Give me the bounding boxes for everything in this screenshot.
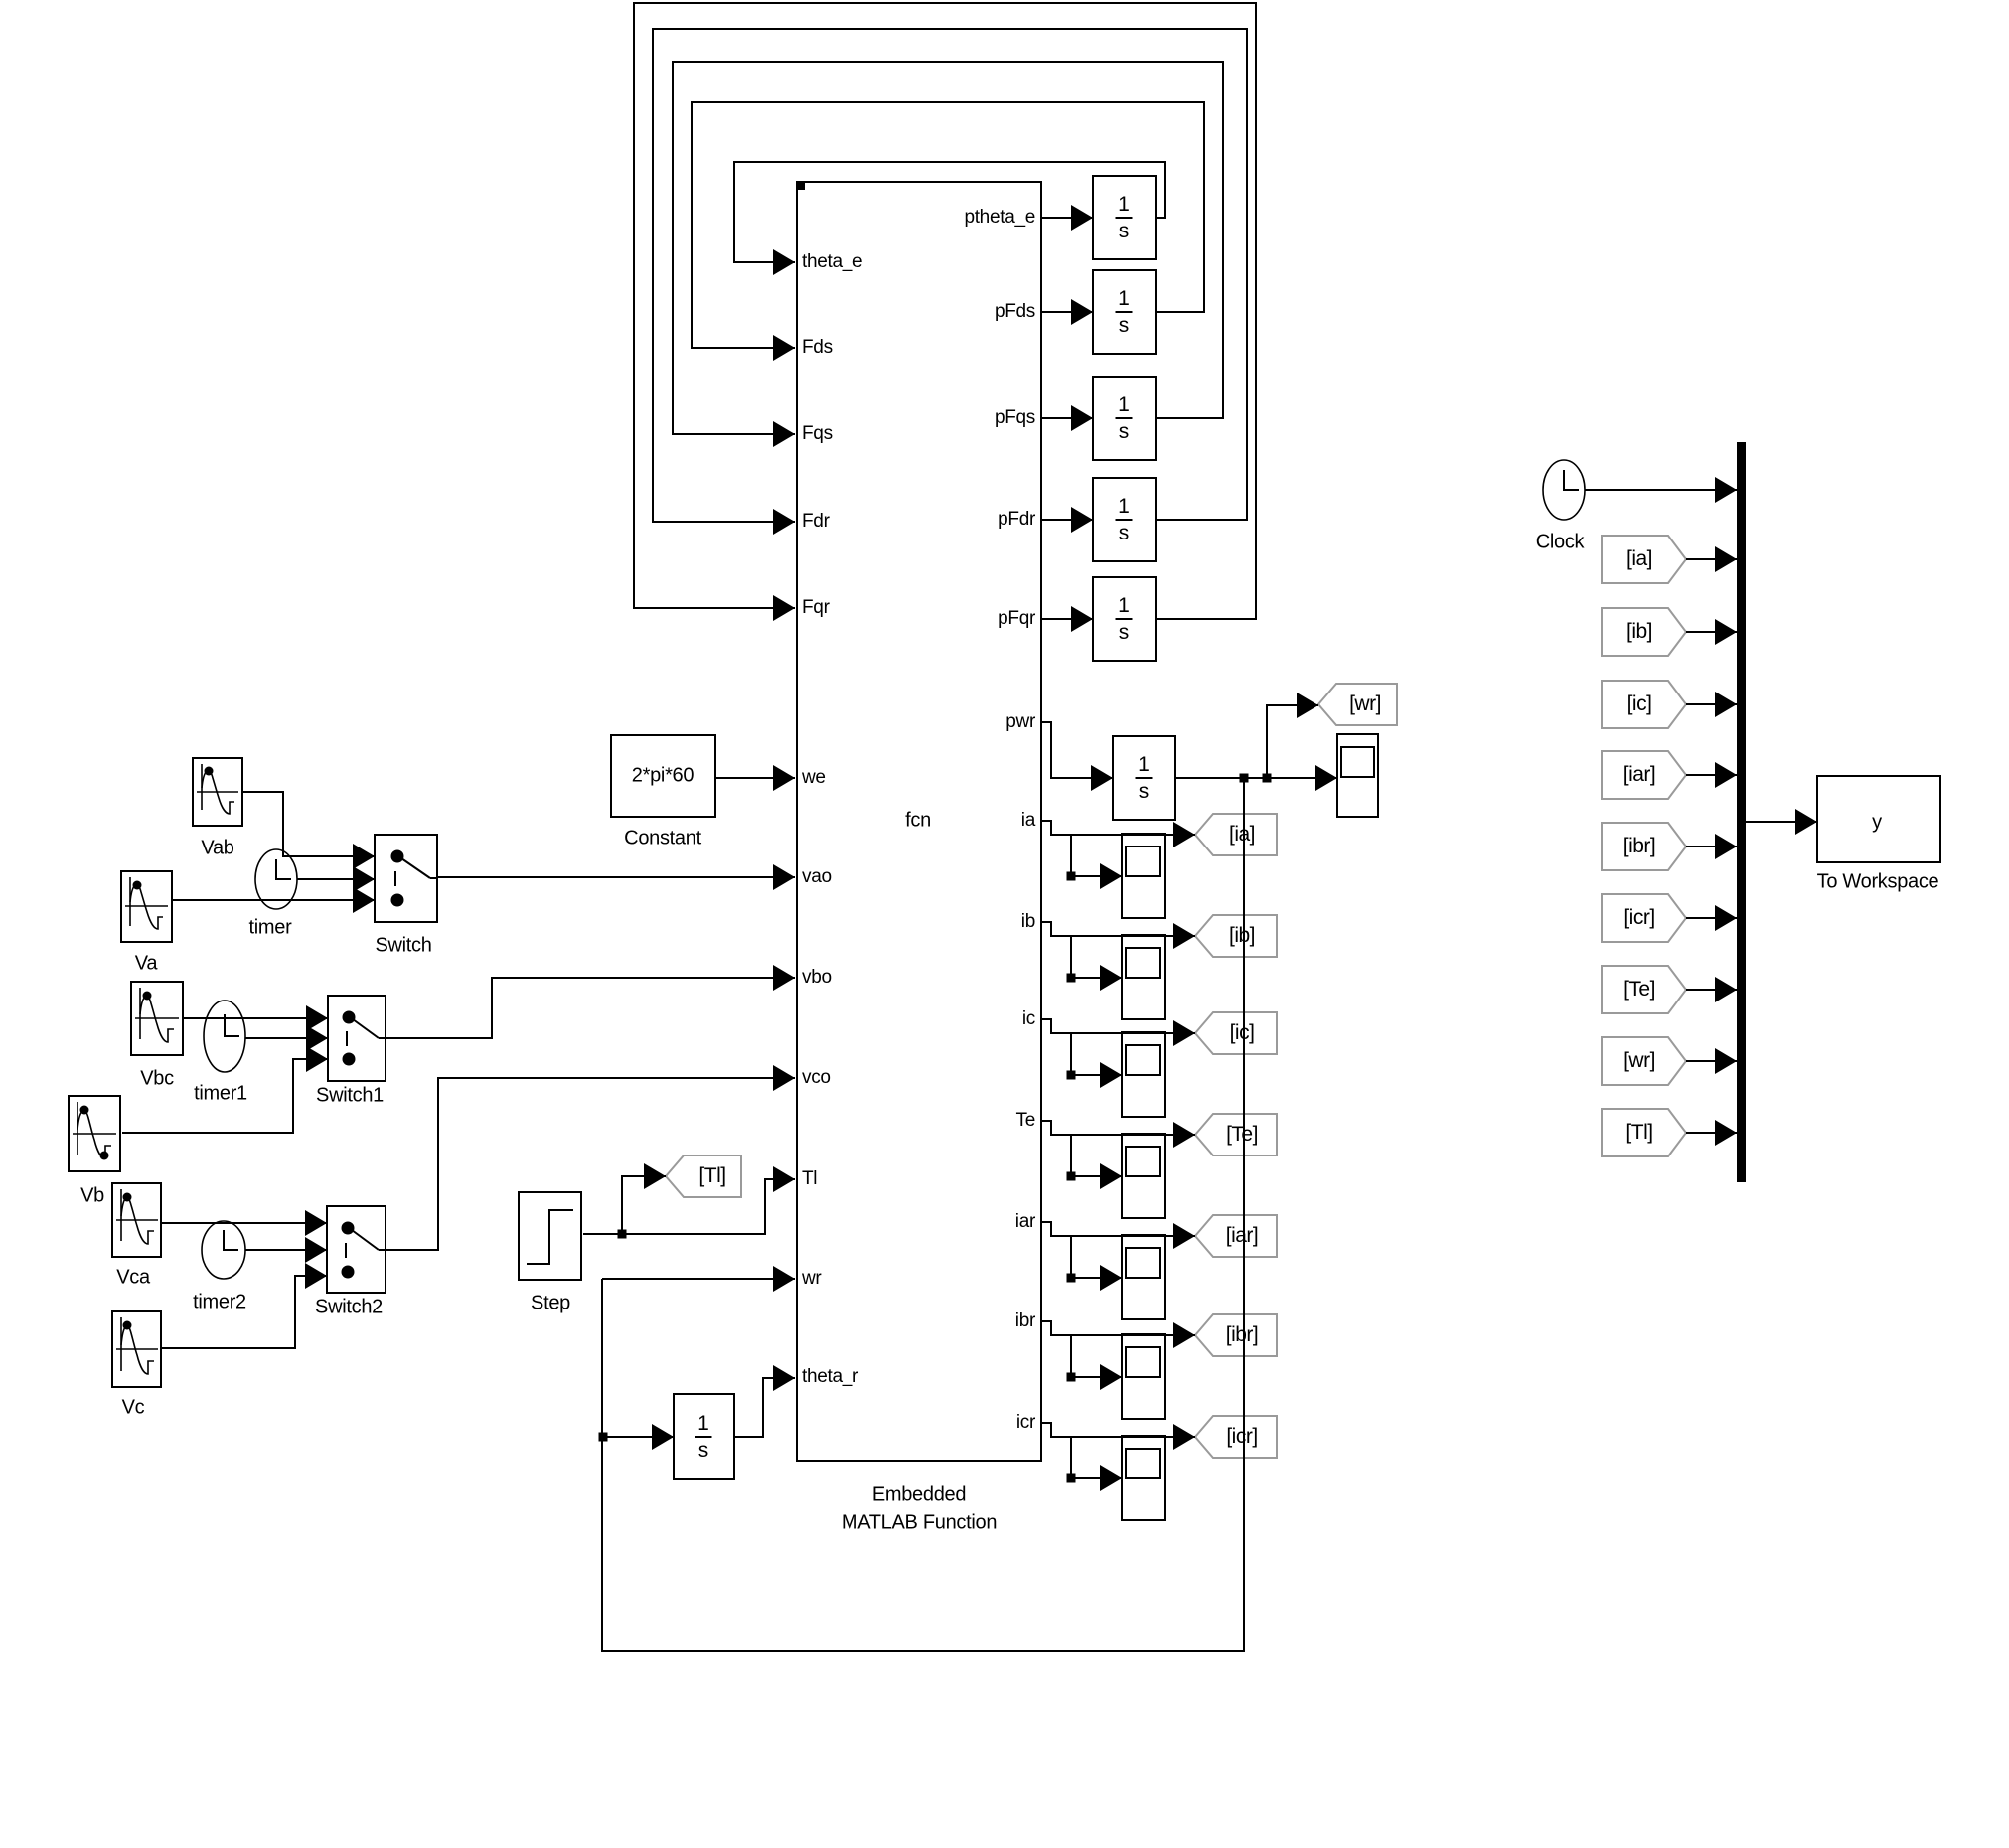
- simulink-model-canvas: Vab timer Switch Va Vbc timer1 Switch1 V…: [0, 0, 2009, 1848]
- port-out-iar: iar: [1015, 1211, 1035, 1233]
- port-in-fqs: Fqs: [802, 423, 833, 445]
- goto-tag-iar-label: [iar]: [1226, 1224, 1259, 1248]
- port-in-we: we: [802, 767, 826, 789]
- vab-label: Vab: [201, 838, 233, 860]
- port-out-pfds: pFds: [995, 301, 1035, 323]
- goto-tag-ibr-label: [ibr]: [1226, 1323, 1259, 1347]
- timer-label: timer: [249, 917, 292, 940]
- port-in-fdr: Fdr: [802, 511, 830, 533]
- port-out-ibr: ibr: [1015, 1310, 1035, 1332]
- constant-label: Constant: [624, 828, 701, 850]
- timer2-label: timer2: [193, 1292, 246, 1314]
- vc-label: Vc: [122, 1397, 145, 1420]
- port-in-vco: vco: [802, 1067, 831, 1089]
- from-tag-iar-label: [iar]: [1623, 763, 1656, 787]
- diagram-graphics: [0, 0, 2009, 1848]
- from-tag-te-label: [Te]: [1623, 978, 1655, 1001]
- integrator-wr-fraction: 1s: [1136, 754, 1153, 802]
- goto-tag-icr-label: [icr]: [1226, 1425, 1257, 1449]
- from-tag-ib-label: [ib]: [1626, 620, 1652, 644]
- port-in-fds: Fds: [802, 337, 833, 359]
- mux-block[interactable]: [1737, 442, 1746, 1182]
- port-in-vao: vao: [802, 866, 832, 888]
- from-tag-wr-label: [wr]: [1623, 1049, 1655, 1073]
- port-out-ia: ia: [1021, 810, 1035, 832]
- switch-label: Switch: [375, 935, 431, 958]
- vb-label: Vb: [80, 1185, 104, 1208]
- switch2-label: Switch2: [315, 1297, 383, 1319]
- port-in-vbo: vbo: [802, 967, 832, 989]
- goto-tag-wr-label: [wr]: [1349, 693, 1381, 716]
- goto-tag-ia-label: [ia]: [1229, 823, 1255, 847]
- port-out-icr: icr: [1016, 1412, 1035, 1434]
- switch1-block[interactable]: [328, 996, 386, 1081]
- timer1-label: timer1: [194, 1083, 247, 1106]
- goto-tag-ib-label: [ib]: [1229, 924, 1255, 948]
- port-in-wr: wr: [802, 1268, 821, 1290]
- from-tag-ia-label: [ia]: [1626, 547, 1652, 571]
- integrator5-fraction: 1s: [1116, 595, 1133, 643]
- from-tag-ic-label: [ic]: [1627, 693, 1652, 716]
- from-tag-ibr-label: [ibr]: [1623, 835, 1656, 858]
- timer2-icon: [202, 1221, 245, 1279]
- port-in-fqr: Fqr: [802, 597, 830, 619]
- fcn-caption-line2: MATLAB Function: [842, 1512, 997, 1535]
- port-in-tl: Tl: [802, 1168, 817, 1190]
- step-label: Step: [531, 1293, 570, 1315]
- port-in-theta-r: theta_r: [802, 1366, 858, 1388]
- port-out-ptheta-e: ptheta_e: [964, 207, 1035, 229]
- integrator4-fraction: 1s: [1116, 496, 1133, 543]
- vca-label: Vca: [116, 1267, 150, 1290]
- va-label: Va: [135, 953, 157, 976]
- goto-tag-te-label: [Te]: [1226, 1123, 1258, 1147]
- timer1-icon: [204, 1001, 245, 1072]
- fcn-caption-line1: Embedded: [872, 1484, 966, 1507]
- port-out-te: Te: [1016, 1110, 1035, 1132]
- port-out-pfqr: pFqr: [998, 608, 1035, 630]
- to-workspace-variable: y: [1872, 812, 1882, 835]
- integrator-theta-r-fraction: 1s: [695, 1413, 712, 1461]
- to-workspace-label: To Workspace: [1817, 871, 1939, 894]
- switch-block[interactable]: [375, 835, 437, 922]
- port-out-ib: ib: [1021, 911, 1035, 933]
- port-out-ic: ic: [1022, 1008, 1035, 1030]
- goto-tag-ic-label: [ic]: [1230, 1021, 1255, 1045]
- vbc-label: Vbc: [140, 1068, 174, 1091]
- integrator1-fraction: 1s: [1116, 194, 1133, 241]
- switch1-label: Switch1: [316, 1085, 384, 1108]
- port-out-pfqs: pFqs: [995, 407, 1035, 429]
- constant-value: 2*pi*60: [632, 765, 694, 788]
- port-out-pwr: pwr: [1005, 711, 1035, 733]
- from-tag-tl-label: [Tl]: [1625, 1121, 1652, 1145]
- fcn-label: fcn: [905, 810, 931, 833]
- port-in-theta-e: theta_e: [802, 251, 862, 273]
- from-tag-icr-label: [icr]: [1623, 906, 1654, 930]
- port-out-pfdr: pFdr: [998, 509, 1035, 531]
- goto-tag-tl-label: [Tl]: [698, 1164, 725, 1188]
- clock-label: Clock: [1536, 532, 1585, 554]
- integrator3-fraction: 1s: [1116, 394, 1133, 442]
- clock-icon: [1543, 460, 1585, 520]
- integrator2-fraction: 1s: [1116, 288, 1133, 336]
